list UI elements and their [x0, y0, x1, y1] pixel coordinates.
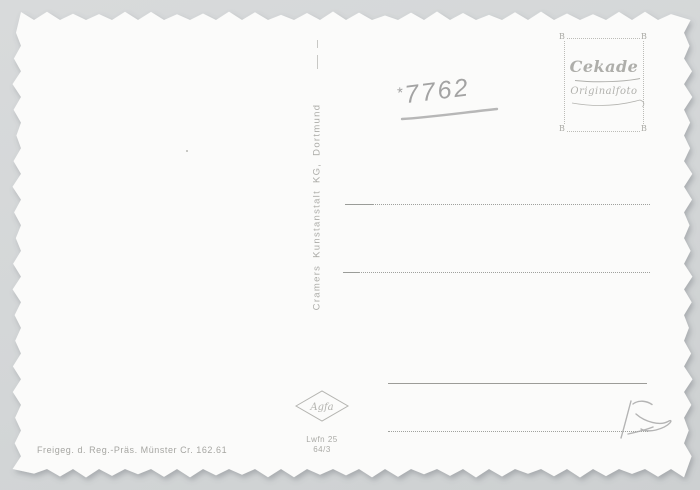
address-line-2-start: [343, 272, 359, 273]
originalfoto-label: Originalfoto: [558, 86, 650, 97]
stamp-box: [564, 38, 644, 132]
stamp-corner-mark-bottom-right: B: [640, 125, 648, 133]
dust-speck: [186, 150, 188, 152]
agfa-diamond-icon: Agfa: [294, 389, 352, 425]
print-code-line-2: 64/3: [292, 445, 352, 455]
approval-note: Freigeg. d. Reg.-Präs. Münster Cr. 162.6…: [37, 445, 227, 455]
publisher-vertical-text: Cramers Kunstanstalt KG, Dortmund: [312, 100, 326, 315]
address-line-2: [343, 272, 650, 273]
address-line-1: [345, 204, 650, 205]
message-line-2: [388, 431, 648, 432]
print-code: Lwfn 25 64/3: [292, 435, 352, 455]
stamp-corner-mark-top-left: B: [558, 33, 566, 41]
print-code-line-1: Lwfn 25: [292, 435, 352, 445]
fold-mark: [317, 40, 318, 48]
cekade-logo: Cekade: [564, 57, 644, 76]
agfa-label: Agfa: [309, 402, 333, 413]
fold-mark: [317, 55, 318, 69]
address-line-1-start: [345, 204, 373, 205]
postcard-scan: B B B B Cekade Originalfoto *7762 Cramer…: [0, 0, 700, 490]
handwritten-star-mark: *: [396, 84, 404, 102]
stamp-corner-mark-top-right: B: [640, 33, 648, 41]
message-line-1: [388, 383, 647, 384]
stamp-corner-mark-bottom-left: B: [558, 125, 566, 133]
